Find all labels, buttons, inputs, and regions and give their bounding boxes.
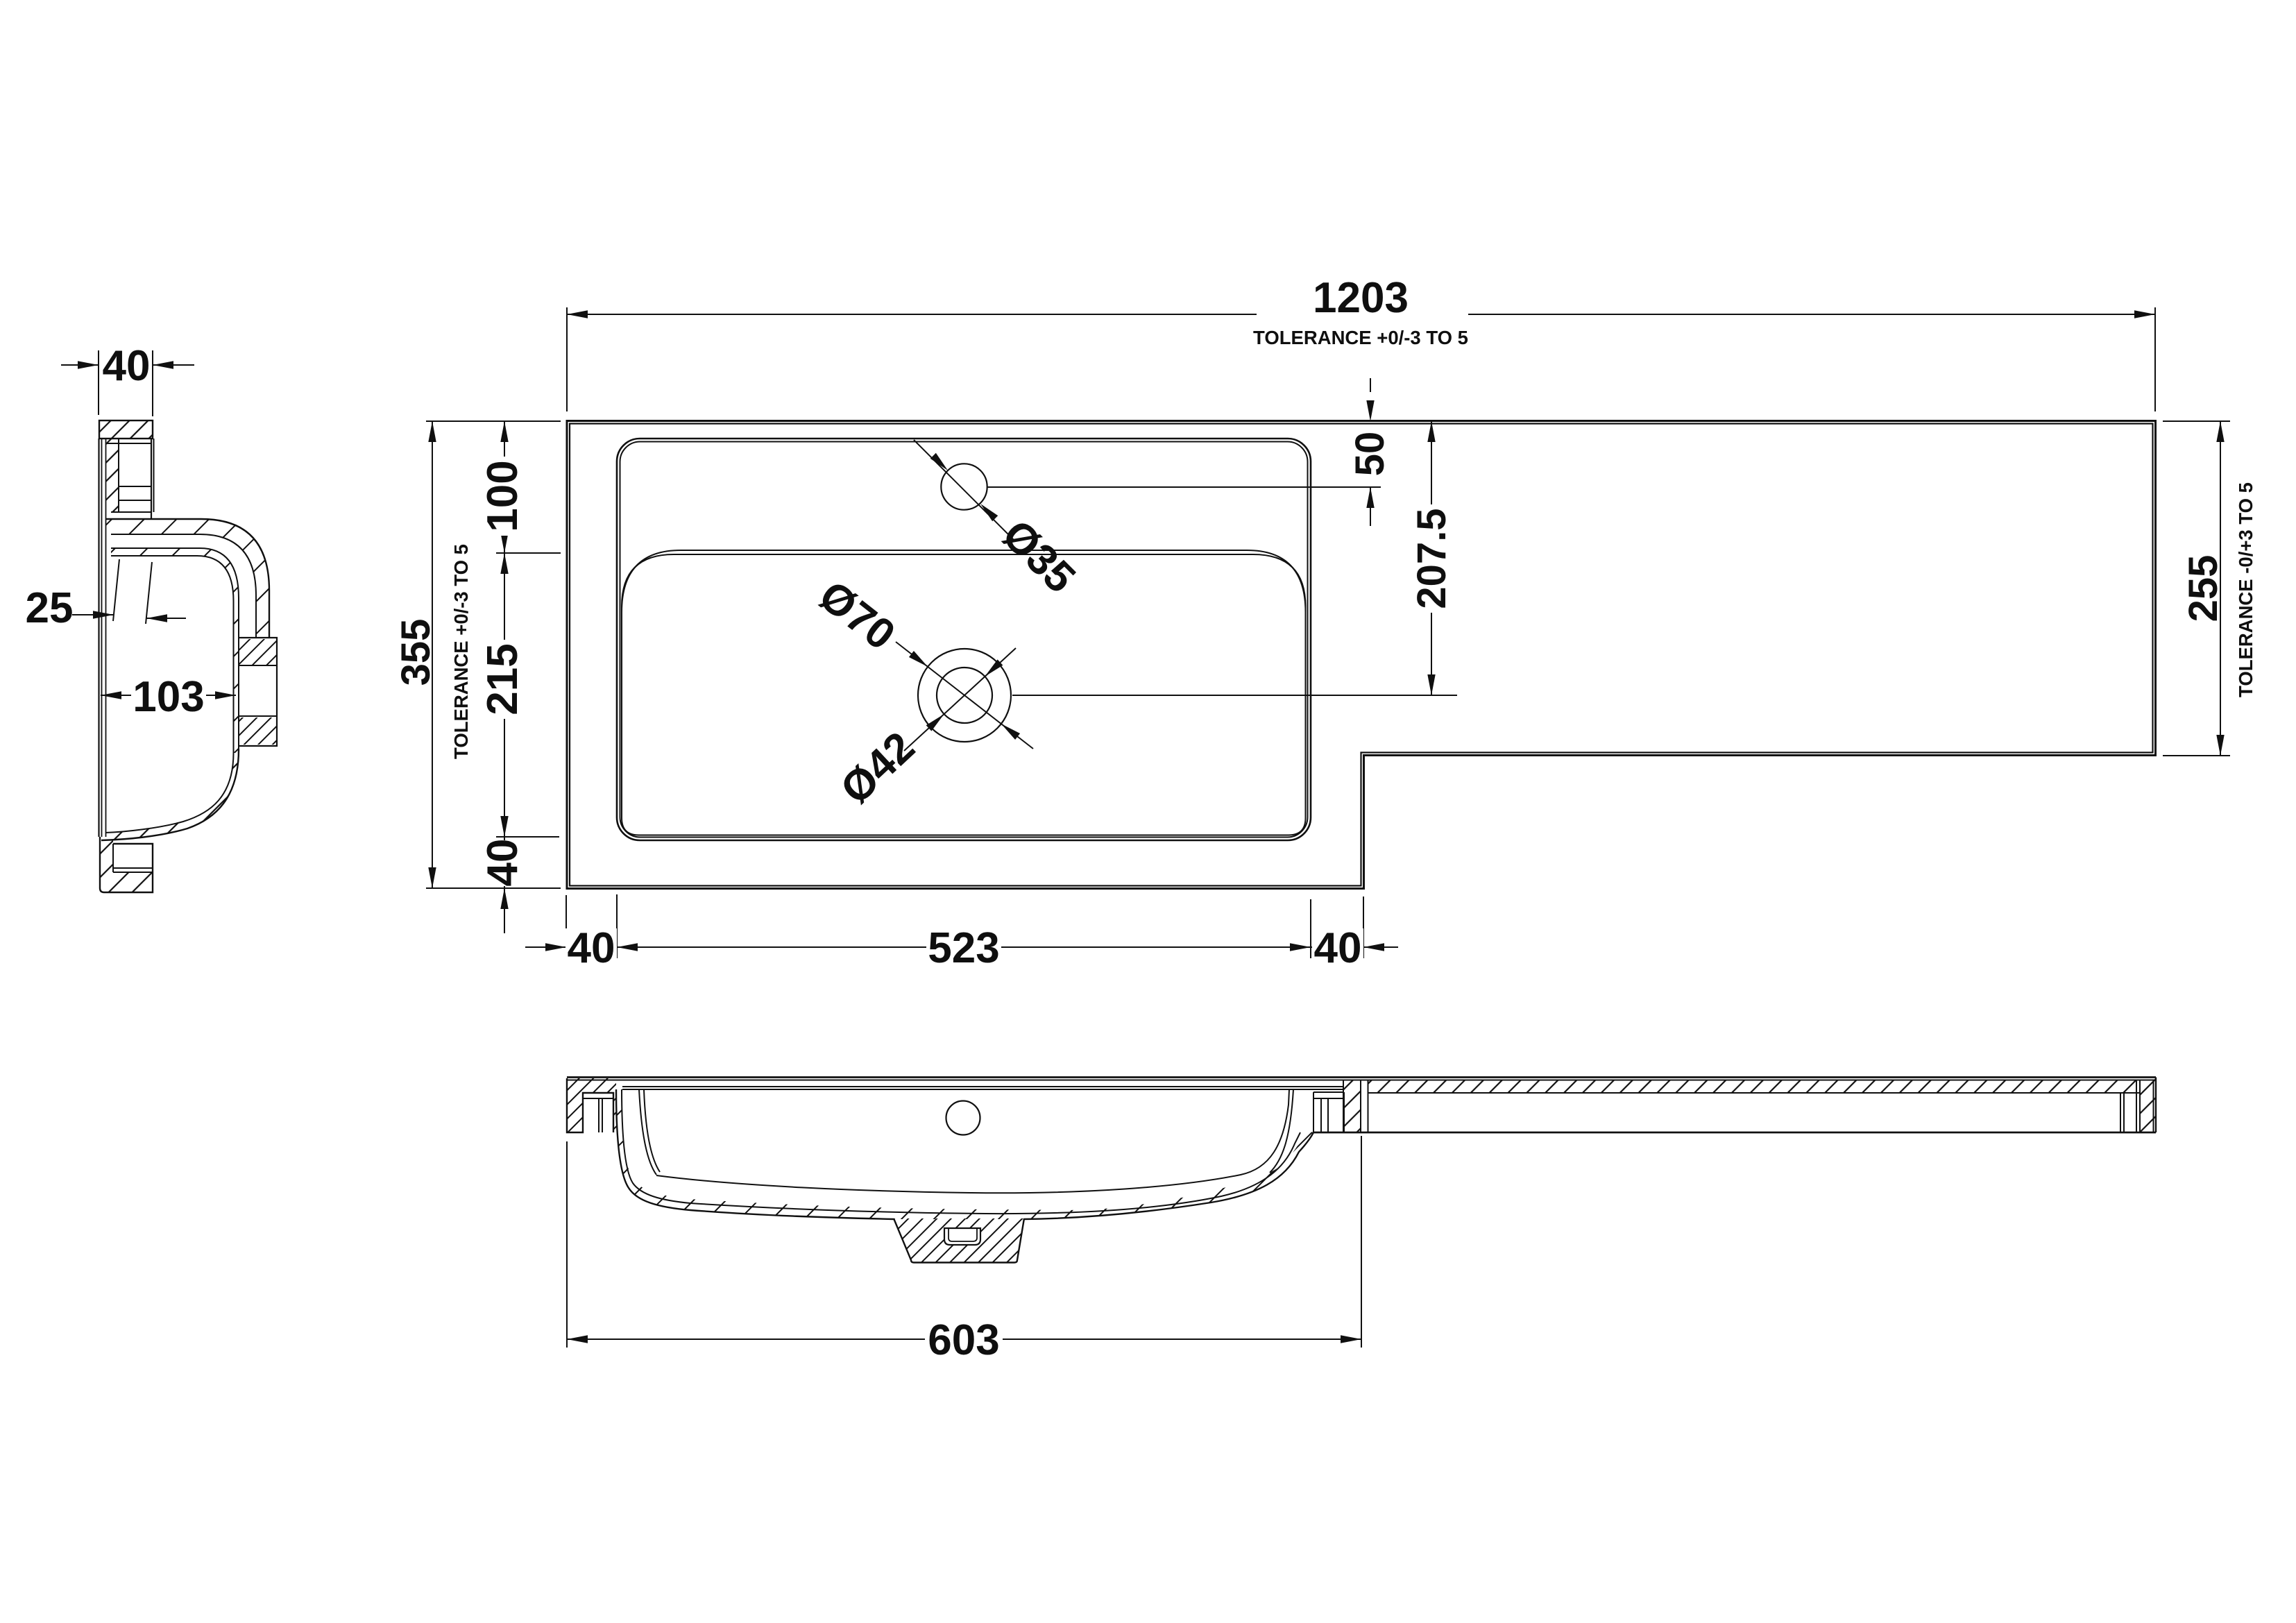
svg-text:40: 40 (568, 924, 615, 972)
svg-text:40: 40 (479, 839, 527, 887)
svg-text:103: 103 (133, 673, 204, 721)
svg-text:1203: 1203 (1313, 274, 1409, 322)
svg-text:25: 25 (26, 584, 74, 632)
svg-text:TOLERANCE -0/+3 TO 5: TOLERANCE -0/+3 TO 5 (2235, 482, 2256, 697)
svg-text:50: 50 (1347, 432, 1393, 477)
svg-text:40: 40 (103, 342, 151, 390)
svg-text:355: 355 (393, 619, 439, 686)
svg-text:TOLERANCE +0/-3 TO 5: TOLERANCE +0/-3 TO 5 (1253, 327, 1468, 348)
svg-text:603: 603 (928, 1316, 999, 1364)
svg-text:255: 255 (2181, 555, 2226, 622)
svg-text:215: 215 (479, 643, 527, 715)
svg-text:523: 523 (928, 924, 999, 972)
svg-text:TOLERANCE +0/-3 TO 5: TOLERANCE +0/-3 TO 5 (450, 544, 472, 759)
svg-text:100: 100 (479, 460, 527, 532)
svg-text:207.5: 207.5 (1409, 508, 1454, 609)
svg-text:40: 40 (1314, 924, 1362, 972)
